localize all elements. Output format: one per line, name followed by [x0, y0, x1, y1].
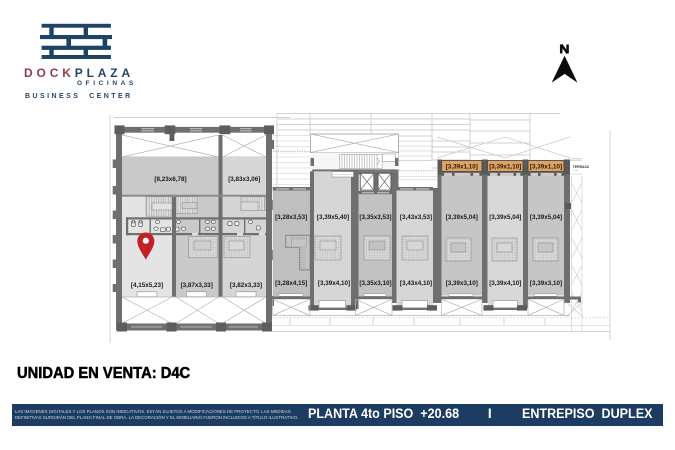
svg-text:[3,39x5,04]: [3,39x5,04] — [446, 214, 478, 221]
svg-text:[3,28x3,53]: [3,28x3,53] — [275, 214, 307, 221]
svg-text:[3,39x3,10]: [3,39x3,10] — [530, 280, 562, 287]
svg-text:[3,39x3,10]: [3,39x3,10] — [446, 280, 478, 287]
svg-text:[3,87x3,33]: [3,87x3,33] — [181, 282, 213, 289]
svg-text:[3,39x1,10]: [3,39x1,10] — [446, 163, 478, 170]
svg-text:[3,35x3,10]: [3,35x3,10] — [359, 280, 391, 287]
svg-text:[3,39x5,40]: [3,39x5,40] — [317, 214, 349, 221]
svg-text:[3,43x3,53]: [3,43x3,53] — [400, 214, 432, 221]
svg-text:a nivel: a nivel — [573, 170, 579, 172]
svg-text:[4,15x5,23]: [4,15x5,23] — [131, 282, 163, 289]
svg-text:[3,83x3,06]: [3,83x3,06] — [228, 176, 260, 183]
svg-text:[3,43x4,10]: [3,43x4,10] — [400, 280, 432, 287]
svg-text:[3,39x5,04]: [3,39x5,04] — [530, 214, 562, 221]
svg-text:[3,39x1,10]: [3,39x1,10] — [489, 163, 521, 170]
svg-text:[3,28x4,15]: [3,28x4,15] — [275, 280, 307, 287]
svg-text:[3,39x5,04]: [3,39x5,04] — [489, 214, 521, 221]
svg-text:TERRAZA: TERRAZA — [573, 165, 590, 169]
svg-text:[8,23x6,78]: [8,23x6,78] — [154, 176, 186, 183]
svg-text:[3,39x4,10]: [3,39x4,10] — [318, 280, 350, 287]
svg-text:[3,39x4,10]: [3,39x4,10] — [489, 280, 521, 287]
svg-text:[3,82x3,33]: [3,82x3,33] — [230, 282, 262, 289]
svg-text:[3,39x1,10]: [3,39x1,10] — [530, 163, 562, 170]
svg-text:[3,35x3,53]: [3,35x3,53] — [359, 214, 391, 221]
